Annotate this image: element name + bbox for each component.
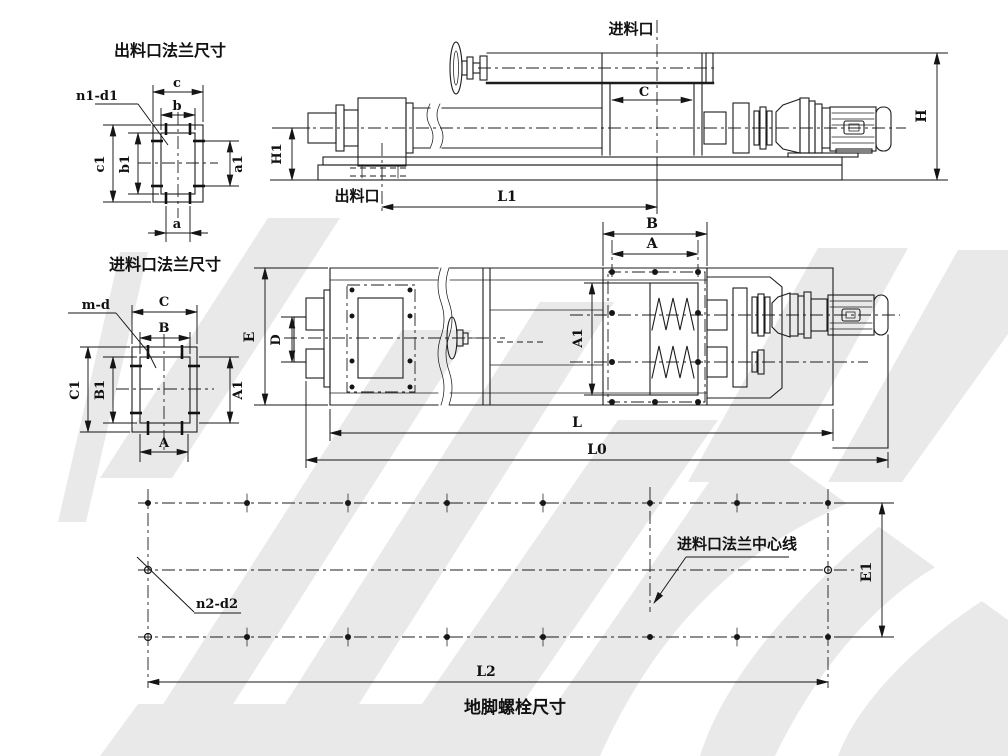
watermark-logo	[58, 218, 1008, 756]
dim-label-b: b	[172, 99, 181, 114]
dim-label-c: c	[173, 76, 181, 91]
dim-label-H1: H1	[270, 143, 285, 164]
screw-flight-upper	[652, 298, 694, 330]
inlet-flange-bolts	[609, 269, 701, 405]
dim-label-C1: C1	[68, 380, 83, 399]
dim-label-C: C	[159, 295, 169, 310]
relief-valve-handwheel	[450, 42, 480, 94]
motor-body	[830, 107, 876, 151]
dim-label-L0: L0	[587, 442, 607, 458]
dim-label-E: E	[242, 332, 258, 343]
outlet-flange-view: 出料口法兰尺寸 c b c1 b1 a1 a n1-d1	[76, 41, 246, 242]
dim-label-A1-plan: A1	[571, 328, 586, 348]
inlet-port-label: 进料口	[608, 20, 653, 38]
drive-train	[704, 98, 891, 157]
motor-end-cap	[876, 107, 891, 151]
dim-label-L2: L2	[476, 664, 496, 680]
machine-base	[323, 157, 842, 165]
dim-label-A1-flange: A1	[231, 380, 246, 400]
engineering-drawing-page: 出料口法兰尺寸 c b c1 b1 a1 a n1-d1	[0, 0, 1008, 756]
dim-label-b1: b1	[118, 155, 133, 173]
inlet-bolt-spec: m-d	[82, 298, 110, 313]
side-view: 进料口 出料口 C L1 H H1	[270, 20, 948, 214]
inlet-flange-bolt-circle	[608, 272, 705, 402]
drawing-canvas: 出料口法兰尺寸 c b c1 b1 a1 a n1-d1	[0, 0, 1008, 756]
dim-label-B-plan: B	[646, 216, 658, 232]
inlet-flange-title: 进料口法兰尺寸	[109, 255, 221, 274]
dim-label-D: D	[269, 334, 284, 345]
dim-label-B: B	[159, 321, 170, 336]
outlet-flange-title: 出料口法兰尺寸	[114, 41, 226, 60]
inlet-centerline-note: 进料口法兰中心线	[677, 535, 797, 553]
dim-label-A-plan: A	[646, 236, 659, 252]
gearbox-bell	[776, 99, 800, 153]
dim-label-B1: B1	[93, 380, 108, 400]
outlet-bolt-spec: n1-d1	[76, 89, 118, 104]
bolt-layout-title: 地脚螺栓尺寸	[464, 697, 566, 718]
anchor-bolt-spec: n2-d2	[196, 597, 238, 612]
dim-label-L: L	[572, 415, 582, 431]
outlet-flange-plate	[324, 290, 330, 387]
dim-label-H: H	[914, 109, 930, 122]
break-line	[427, 104, 433, 148]
dim-label-a1: a1	[231, 155, 246, 172]
dim-label-L1: L1	[497, 189, 517, 205]
dim-label-E1: E1	[859, 562, 875, 582]
inlet-opening	[650, 283, 698, 395]
dim-label-inlet-width-C: C	[639, 85, 649, 100]
dim-label-c1: c1	[93, 156, 108, 173]
dim-label-A-flange: A	[158, 436, 170, 451]
motor-pedestal	[788, 153, 858, 157]
dim-label-a: a	[173, 217, 182, 232]
outlet-port-label: 出料口	[334, 187, 379, 205]
motor-nameplate	[844, 121, 864, 134]
